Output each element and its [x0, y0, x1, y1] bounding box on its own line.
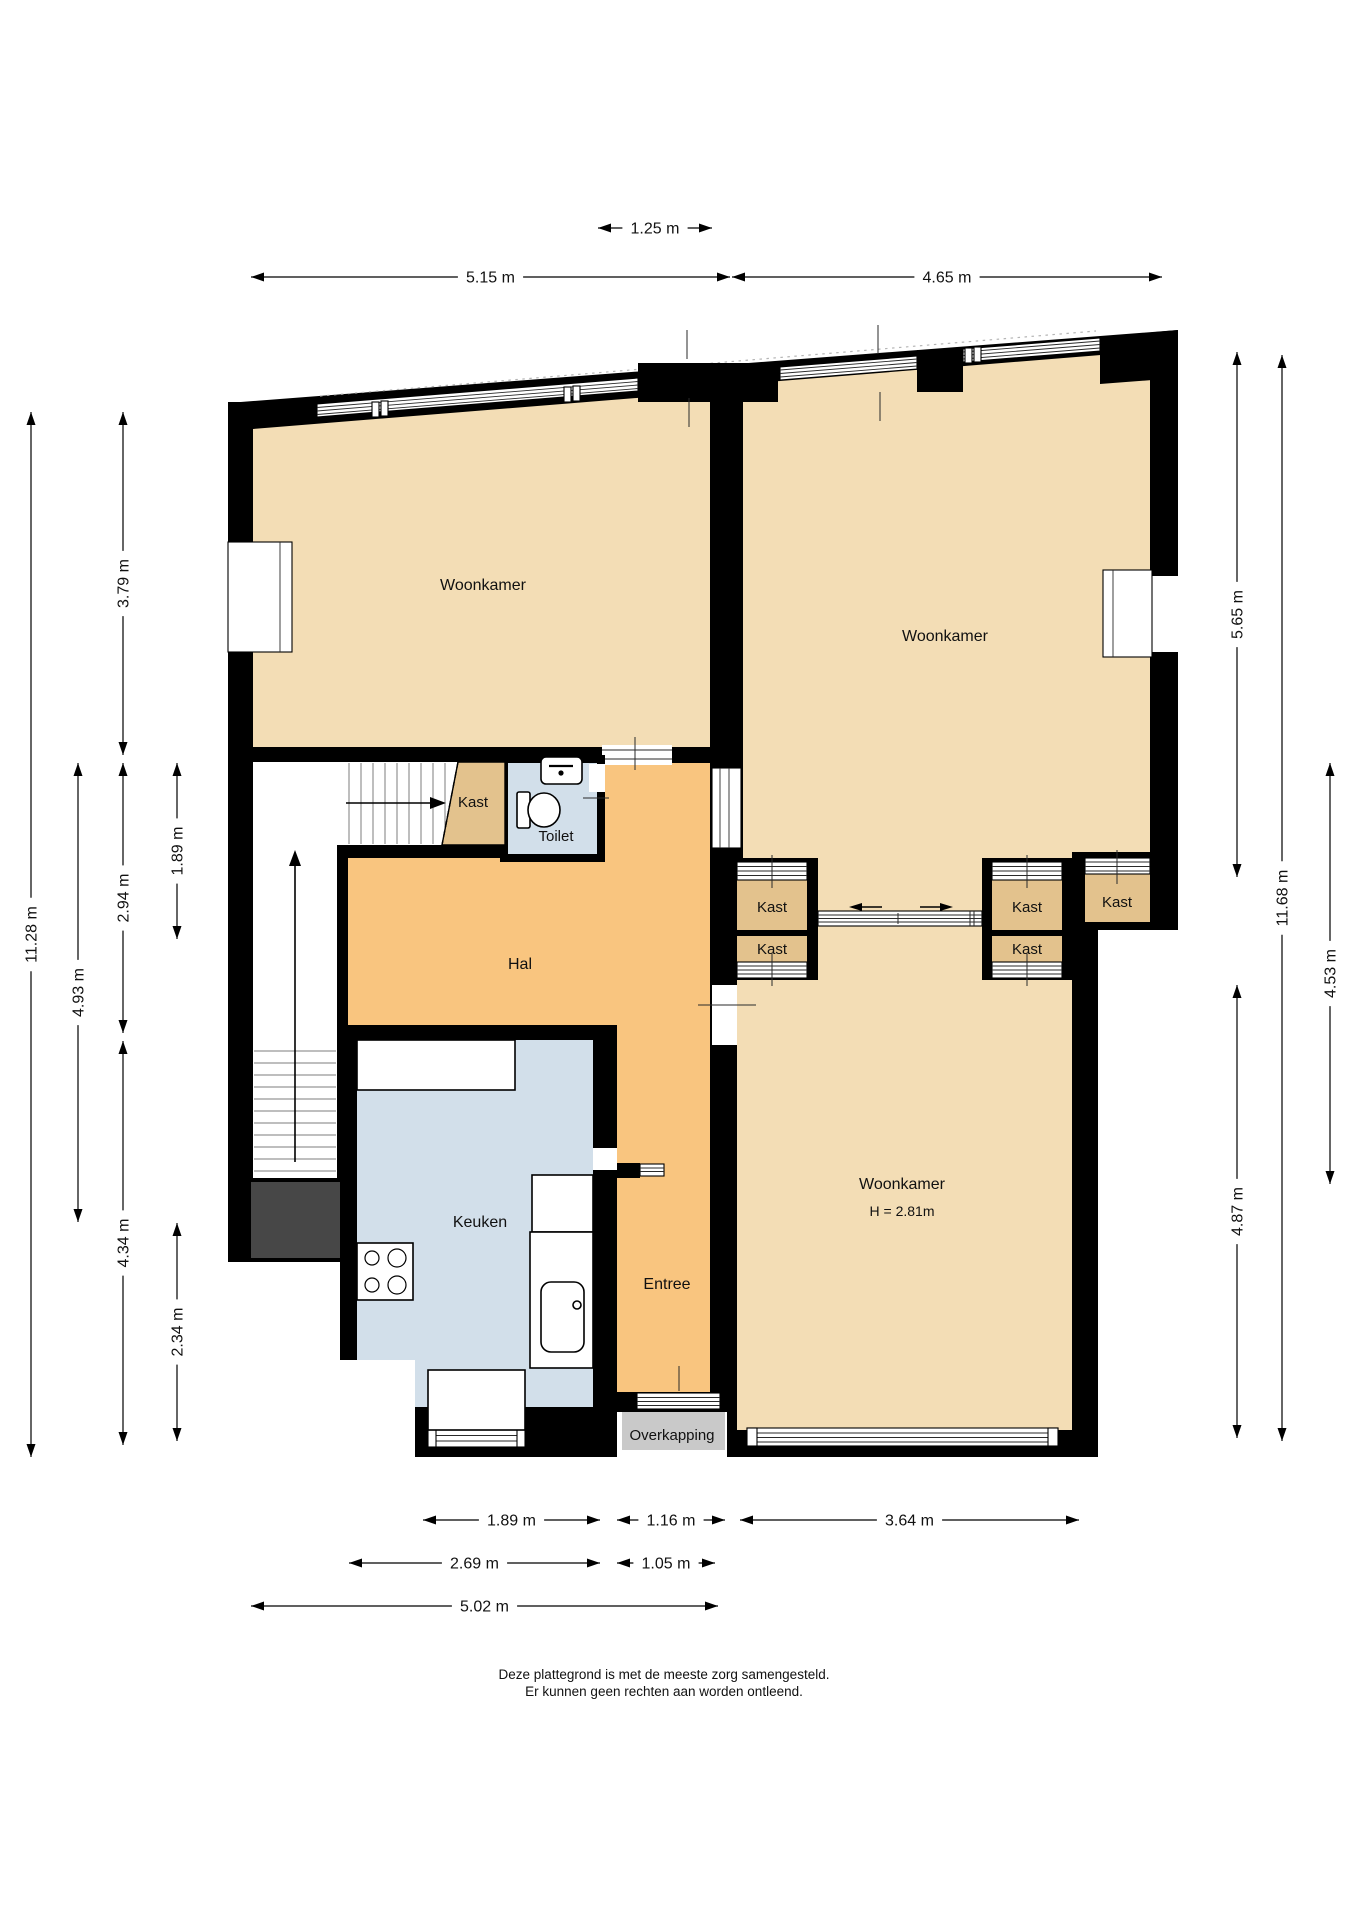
dimension-label: 2.94 m: [116, 874, 133, 923]
dimension-label: 4.65 m: [923, 270, 972, 287]
floorplan-page: WoonkamerWoonkamerWoonkamerH = 2.81mHalK…: [0, 0, 1358, 1920]
dimension-4.34m: 4.34 m: [116, 1041, 133, 1445]
dimension-1.25m: 1.25 m: [598, 221, 712, 238]
dimension-label: 5.65 m: [1230, 590, 1247, 639]
footer-line-2: Er kunnen geen rechten aan worden ontlee…: [525, 1684, 803, 1699]
room-label-hal: Hal: [508, 956, 532, 973]
door-hal-to-woonkamer2: [712, 768, 741, 848]
toilet-door: [589, 764, 605, 792]
wall-under-window: [428, 1447, 525, 1457]
dimension-2.69m: 2.69 m: [349, 1556, 600, 1573]
room-label-kast-corner: Kast: [1102, 894, 1133, 911]
room-label-toilet: Toilet: [538, 828, 574, 845]
room-label-overkapping: Overkapping: [629, 1427, 714, 1444]
dimension-1.89m: 1.89 m: [170, 763, 187, 939]
dimension-label: 2.69 m: [450, 1556, 499, 1573]
kitchen-sink-icon: [541, 1282, 584, 1352]
dimension-1.16m: 1.16 m: [617, 1513, 725, 1530]
dimension-4.53m: 4.53 m: [1323, 763, 1340, 1184]
window-woonkamer3-bottom: [747, 1428, 1058, 1446]
dimension-label: 11.68 m: [1275, 870, 1292, 927]
dimension-label: 1.89 m: [170, 827, 187, 876]
window-right-wall: [1103, 570, 1178, 657]
dimension-label: 1.16 m: [647, 1513, 696, 1530]
dimension-label: 1.25 m: [631, 221, 680, 238]
room-label-entree: Entree: [643, 1276, 690, 1293]
void-area: [251, 1182, 343, 1258]
wall-keuken-top: [340, 1025, 617, 1040]
dimension-label: 3.79 m: [116, 559, 133, 608]
dimension-3.79m: 3.79 m: [116, 412, 133, 755]
room-label-woonkamer-top-left: Woonkamer: [440, 577, 527, 594]
dimension-4.87m: 4.87 m: [1230, 985, 1247, 1438]
dimension-label: 1.05 m: [642, 1556, 691, 1573]
dimension-label: 2.34 m: [170, 1308, 187, 1357]
dimension-3.64m: 3.64 m: [740, 1513, 1079, 1530]
dimension-4.93m: 4.93 m: [71, 763, 88, 1222]
room-label-keuken: Keuken: [453, 1214, 507, 1231]
counter-bottom: [428, 1370, 525, 1430]
toilet-room: [500, 755, 609, 862]
room-label-kast-under-stairs: Kast: [458, 794, 489, 811]
dimension-5.15m: 5.15 m: [251, 270, 730, 287]
wall-top-chunk: [917, 350, 963, 392]
dimension-label: 5.15 m: [466, 270, 515, 287]
stove-icon: [357, 1243, 413, 1300]
wall-top-right-corner: [1100, 330, 1178, 384]
floorplan-svg: WoonkamerWoonkamerWoonkamerH = 2.81mHalK…: [0, 0, 1358, 1920]
dimension-5.65m: 5.65 m: [1230, 352, 1247, 877]
counter-top: [357, 1040, 515, 1090]
hand-basin-icon: [541, 757, 582, 784]
dimension-2.94m: 2.94 m: [116, 763, 133, 1033]
dimension-1.89m: 1.89 m: [423, 1513, 600, 1530]
wall-t-top: [638, 363, 778, 402]
wall-keuken-right: [593, 1033, 617, 1457]
footer-line-1: Deze plattegrond is met de meeste zorg s…: [499, 1667, 830, 1682]
room-label-woonkamer-bottom-right: Woonkamer: [859, 1176, 946, 1193]
dimension-label: 4.34 m: [116, 1219, 133, 1268]
dimension-4.65m: 4.65 m: [732, 270, 1162, 287]
room-label-kast-ensuite-right-bottom: Kast: [1012, 941, 1043, 958]
dimension-1.05m: 1.05 m: [617, 1556, 715, 1573]
dimension-2.34m: 2.34 m: [170, 1223, 187, 1441]
dimension-5.02m: 5.02 m: [251, 1599, 718, 1616]
dimension-label: 1.89 m: [487, 1513, 536, 1530]
dimension-11.28m: 11.28 m: [24, 412, 41, 1457]
room-label-woonkamer-top-right: Woonkamer: [902, 628, 989, 645]
room-fill-woonkamer-top-left: [253, 392, 710, 747]
dimension-11.68m: 11.68 m: [1275, 355, 1292, 1441]
dimension-label: 4.53 m: [1323, 949, 1340, 998]
dimension-label: 5.02 m: [460, 1599, 509, 1616]
dimension-label: 4.93 m: [71, 968, 88, 1017]
kitchen: [340, 1025, 664, 1457]
wall-keuken-bottom-left: [415, 1407, 428, 1457]
toilet-icon: [517, 792, 560, 828]
counter-right-upper: [532, 1175, 593, 1232]
room-label-kast-ensuite-right-top: Kast: [1012, 899, 1043, 916]
room-sublabel-woonkamer-bottom-right: H = 2.81m: [870, 1203, 935, 1219]
dimension-label: 3.64 m: [885, 1513, 934, 1530]
room-label-kast-ensuite-left-bottom: Kast: [757, 941, 788, 958]
dimension-label: 11.28 m: [24, 906, 41, 963]
wall-keuken-left: [340, 1025, 357, 1360]
sliding-doors: [818, 911, 982, 926]
wall-keuken-bottom-right: [525, 1407, 617, 1457]
room-label-kast-ensuite-left-top: Kast: [757, 899, 788, 916]
dimension-label: 4.87 m: [1230, 1187, 1247, 1236]
footer-disclaimer: Deze plattegrond is met de meeste zorg s…: [499, 1667, 830, 1699]
window-left-wall: [228, 542, 292, 652]
window-keuken-bottom: [428, 1430, 525, 1447]
